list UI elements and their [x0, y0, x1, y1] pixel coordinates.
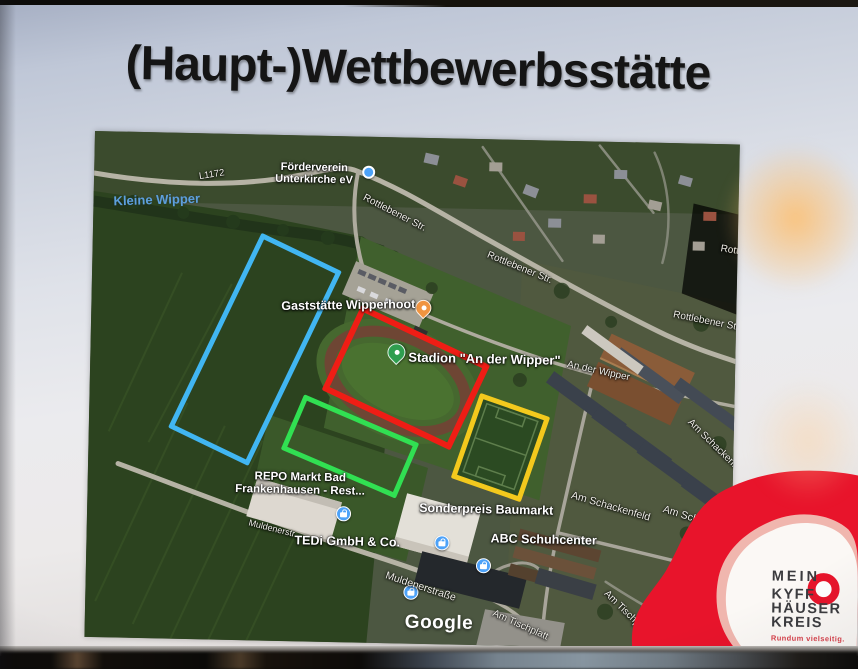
poi-foerderverein-line2: Unterkirche eV	[266, 173, 362, 187]
google-watermark: Google	[405, 612, 474, 635]
poi-foerderverein: Förderverein Unterkirche eV	[266, 161, 362, 187]
poi-abc: ABC Schuhcenter	[490, 531, 597, 547]
background-below-screen	[0, 652, 858, 669]
water-label: Kleine Wipper	[113, 191, 200, 209]
logo-line-kreis: KREIS	[771, 616, 823, 630]
poi-tedi: TEDi GmbH & Co.	[294, 533, 400, 549]
poi-stadion: Stadion "An der Wipper"	[408, 350, 561, 368]
slide-title: (Haupt-)Wettbewerbsstätte	[82, 35, 755, 102]
poi-gaststaette: Gaststätte Wipperhoot	[281, 297, 415, 313]
kyffhaeuserkreis-logo: MEIN KYFF HÄUSER KREIS Rundum vielseitig…	[619, 466, 858, 654]
photo-of-presentation-screen: (Haupt-)Wettbewerbsstätte	[0, 0, 858, 669]
room-dark-edge-top	[0, 0, 858, 7]
logo-line-mein: MEIN	[772, 570, 820, 584]
poi-sonderpreis: Sonderpreis Baumarkt	[419, 501, 553, 518]
logo-tagline: Rundum vielseitig.	[771, 633, 845, 643]
poi-repo: REPO Markt Bad Frankenhausen - Rest...	[232, 470, 368, 499]
slide-background: (Haupt-)Wettbewerbsstätte	[0, 5, 858, 650]
